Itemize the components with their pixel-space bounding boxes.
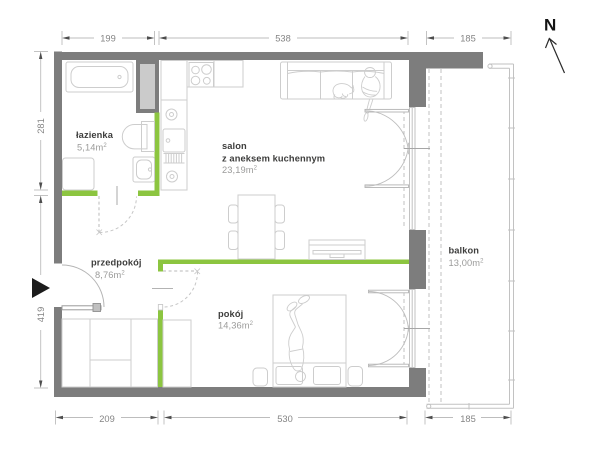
svg-text:185: 185 (460, 34, 476, 44)
svg-text:530: 530 (277, 414, 293, 424)
svg-text:salon: salon (222, 141, 247, 151)
svg-text:13,00m2: 13,00m2 (449, 258, 485, 268)
svg-text:5,14m2: 5,14m2 (77, 143, 107, 153)
svg-text:pokój: pokój (218, 309, 243, 319)
svg-text:419: 419 (36, 307, 46, 323)
svg-text:z aneksem kuchennym: z aneksem kuchennym (222, 154, 325, 164)
svg-text:23,19m2: 23,19m2 (222, 165, 258, 175)
svg-text:łazienka: łazienka (76, 130, 114, 140)
svg-text:281: 281 (36, 118, 46, 134)
svg-text:199: 199 (100, 34, 116, 44)
svg-text:8,76m2: 8,76m2 (95, 270, 125, 280)
svg-text:balkon: balkon (449, 246, 480, 256)
svg-text:209: 209 (99, 414, 115, 424)
svg-text:przedpokój: przedpokój (91, 258, 142, 268)
svg-text:N: N (544, 16, 556, 35)
svg-text:14,36m2: 14,36m2 (218, 321, 254, 331)
svg-text:538: 538 (275, 34, 291, 44)
svg-text:185: 185 (460, 414, 476, 424)
